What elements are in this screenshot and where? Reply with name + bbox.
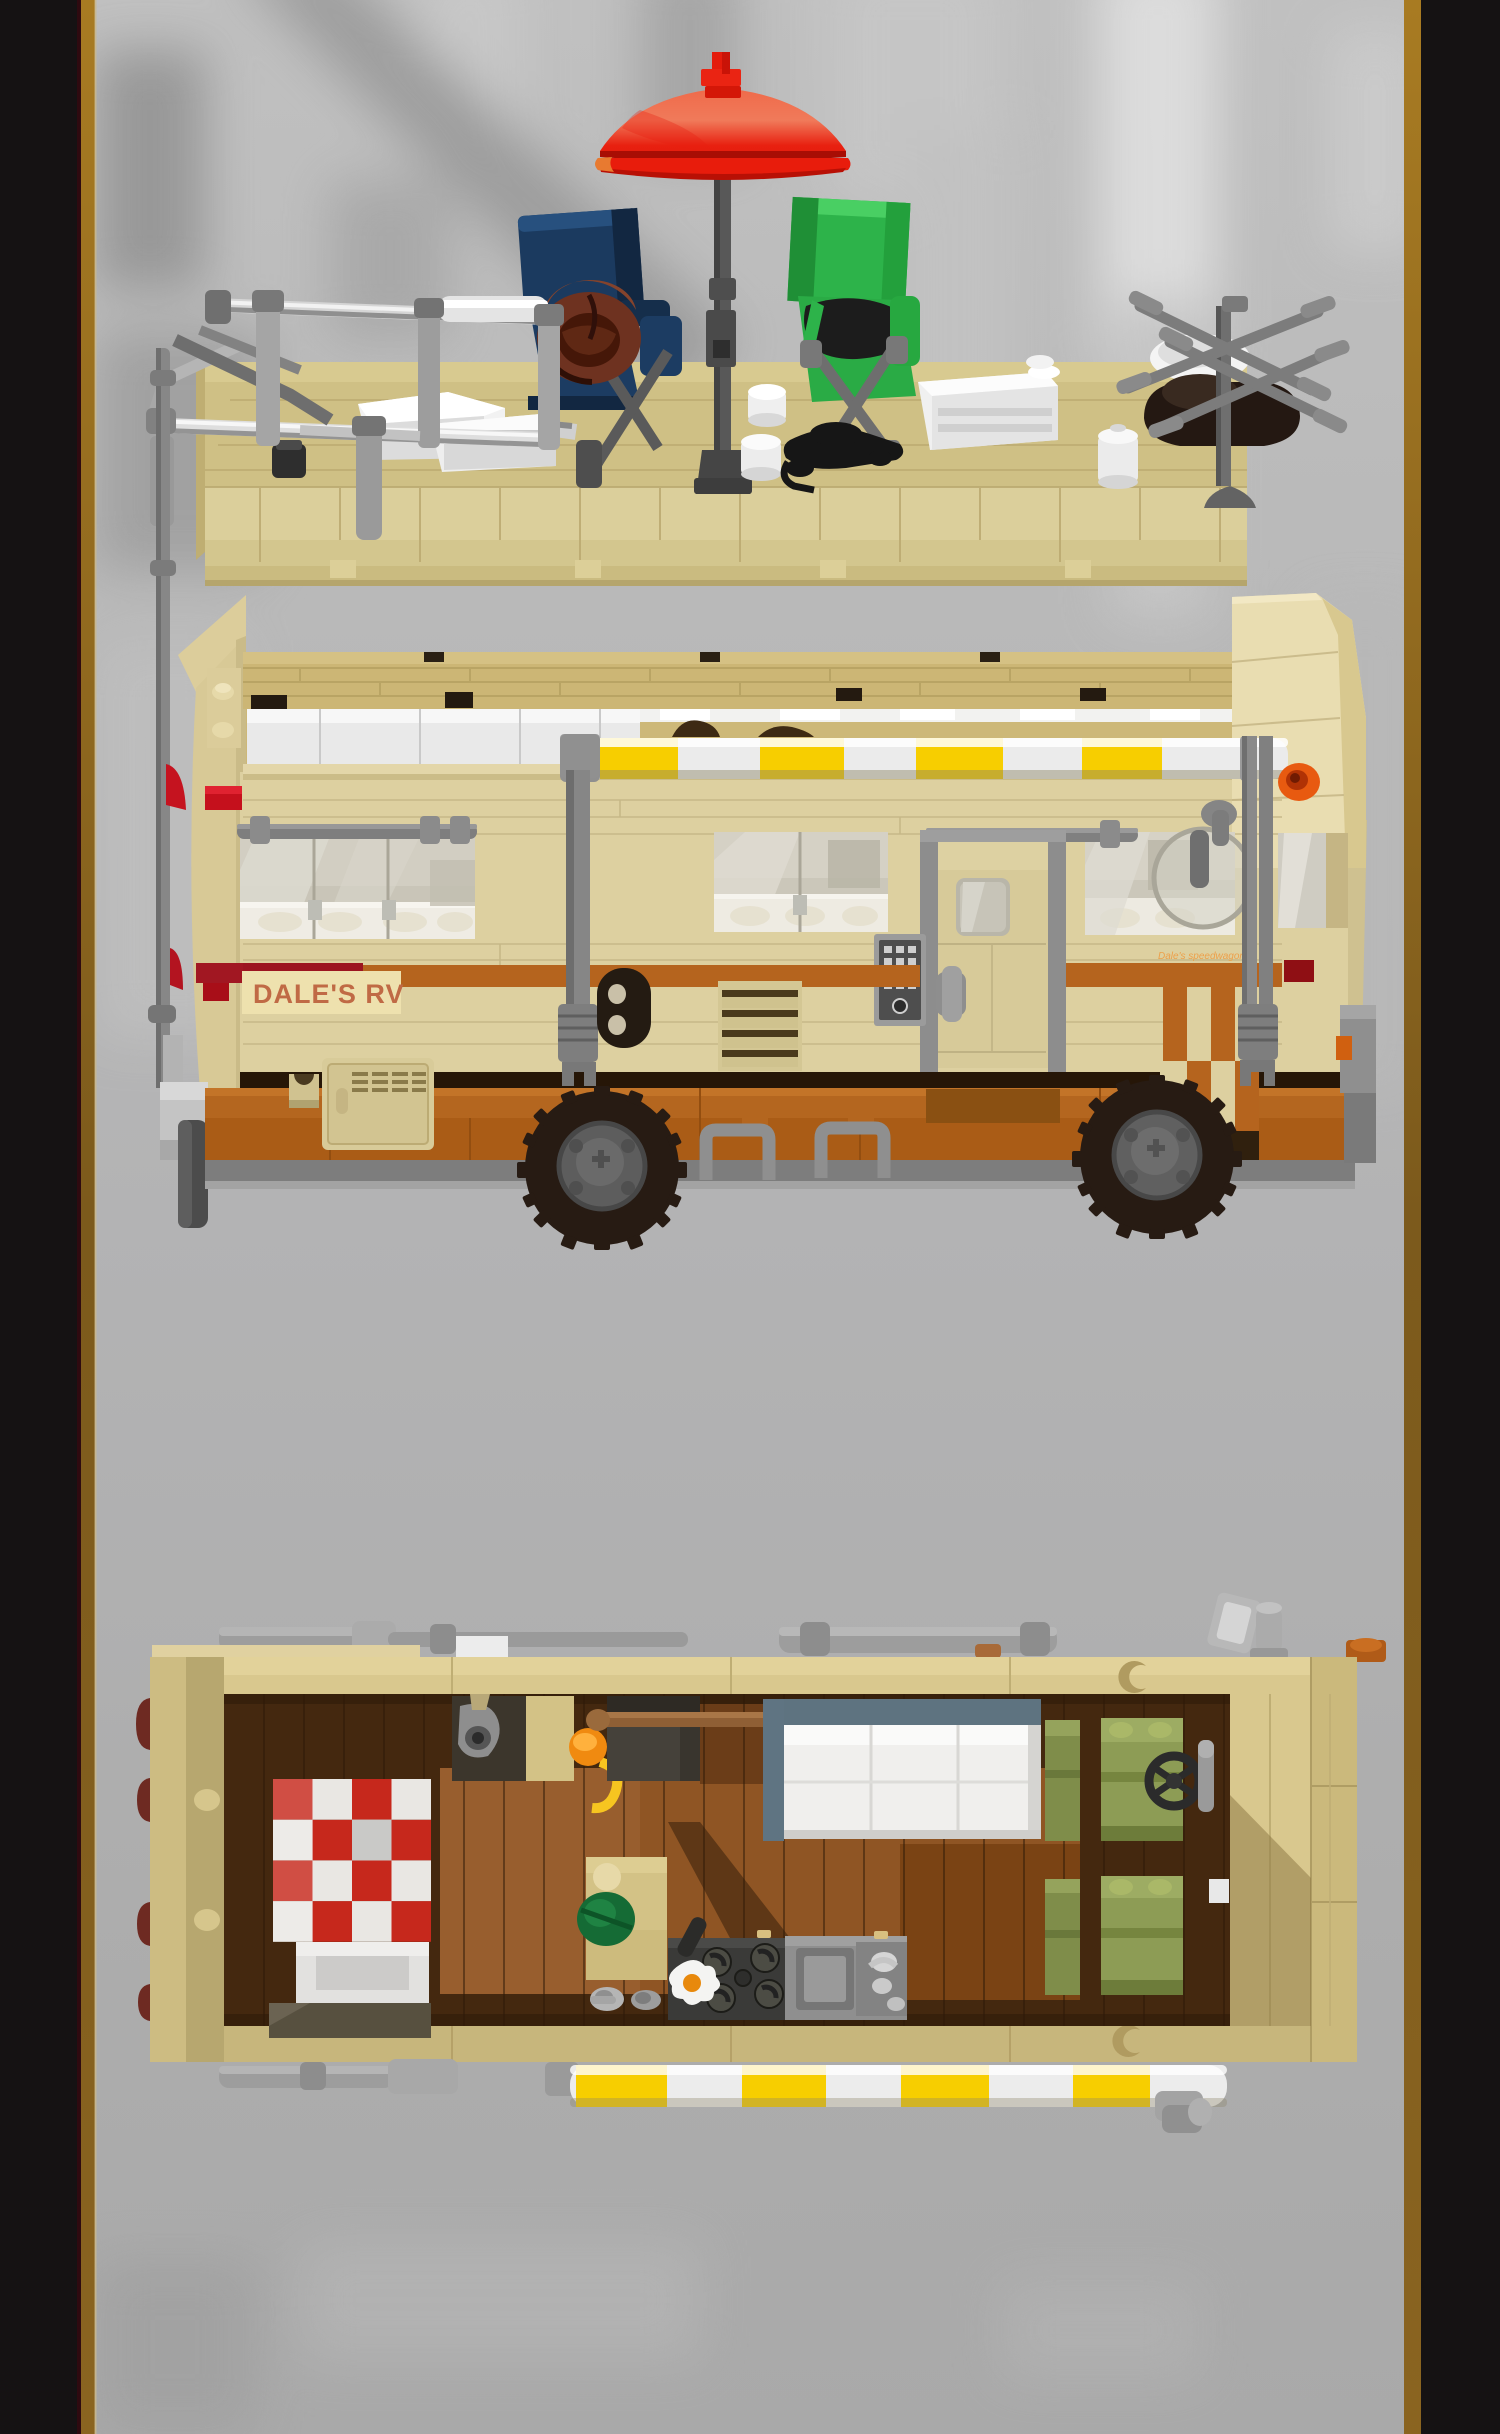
svg-text:Dale's speedwagon: Dale's speedwagon [1158,951,1245,962]
svg-text:DALE'S RV: DALE'S RV [253,979,404,1009]
